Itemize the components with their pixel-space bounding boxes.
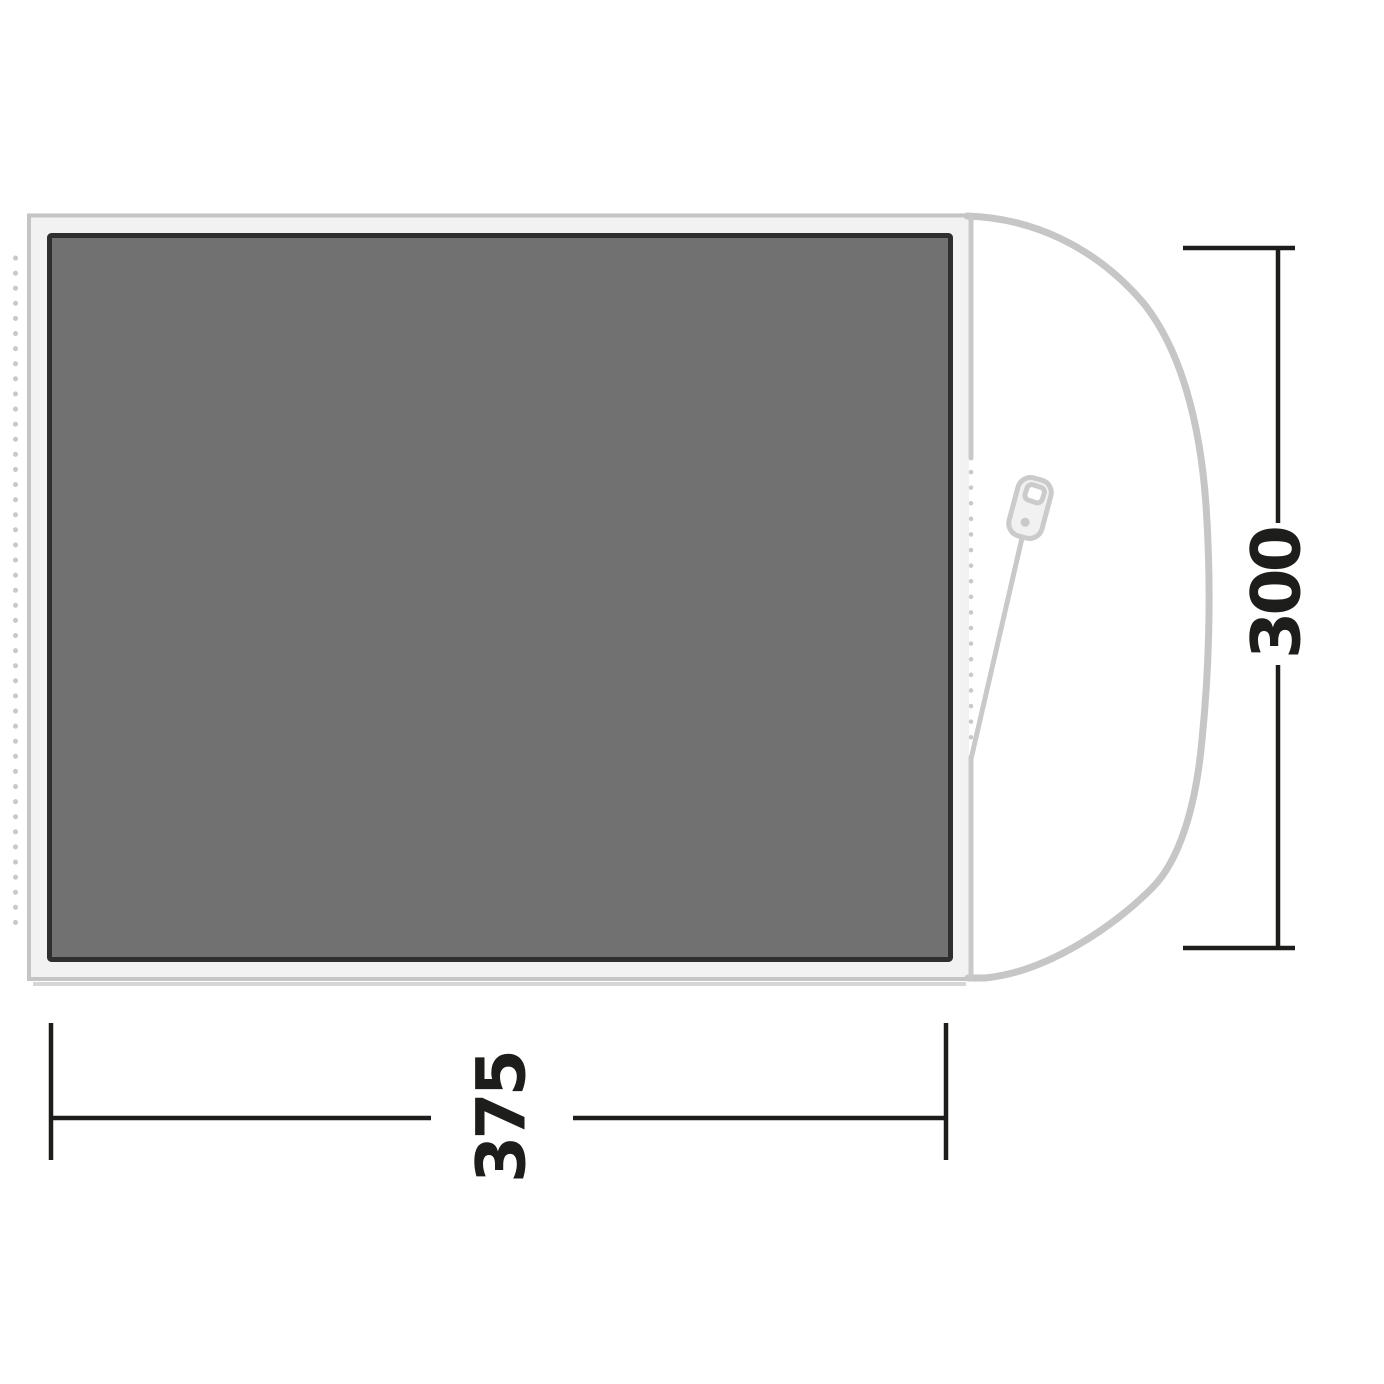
carpet-area — [50, 236, 951, 960]
tent-footprint-diagram-page: 375 300 — [0, 0, 1384, 1384]
zipper-pull-hole — [1024, 483, 1046, 504]
zipper-pull-icon — [1006, 475, 1054, 542]
tent-footprint-diagram: 375 300 — [0, 0, 1384, 1384]
tent-outline-curve — [967, 216, 1209, 978]
depth-dimension-label: 300 — [1238, 527, 1317, 659]
width-dimension-label: 375 — [463, 1053, 542, 1183]
zipper-cord — [972, 538, 1023, 757]
door-zipper — [971, 218, 1054, 977]
